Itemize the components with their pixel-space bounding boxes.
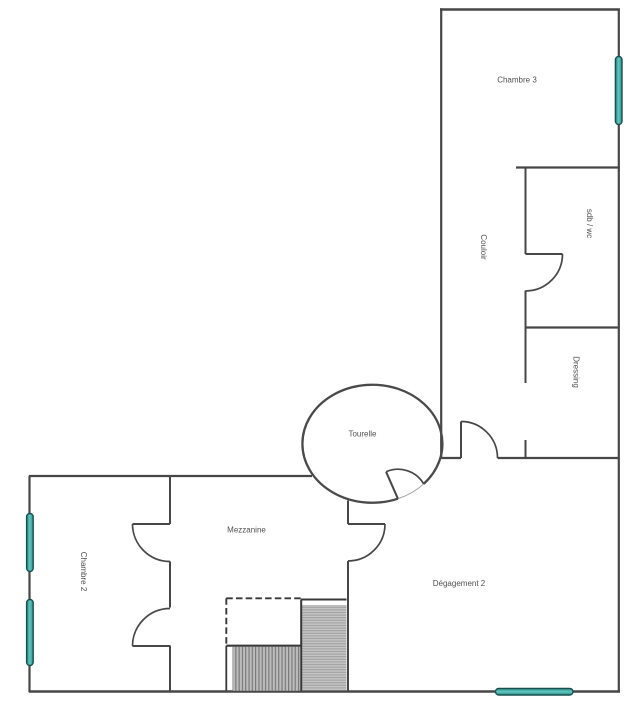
svg-text:Dégagement 2: Dégagement 2: [433, 579, 486, 588]
svg-text:Dressing: Dressing: [572, 356, 581, 388]
svg-text:Chambre 2: Chambre 2: [79, 552, 88, 592]
svg-text:Chambre 3: Chambre 3: [497, 76, 537, 85]
svg-text:Mezzanine: Mezzanine: [227, 526, 266, 535]
svg-text:Couloir: Couloir: [479, 234, 488, 260]
svg-text:Tourelle: Tourelle: [348, 430, 377, 439]
svg-text:sdb / wc: sdb / wc: [585, 209, 594, 238]
